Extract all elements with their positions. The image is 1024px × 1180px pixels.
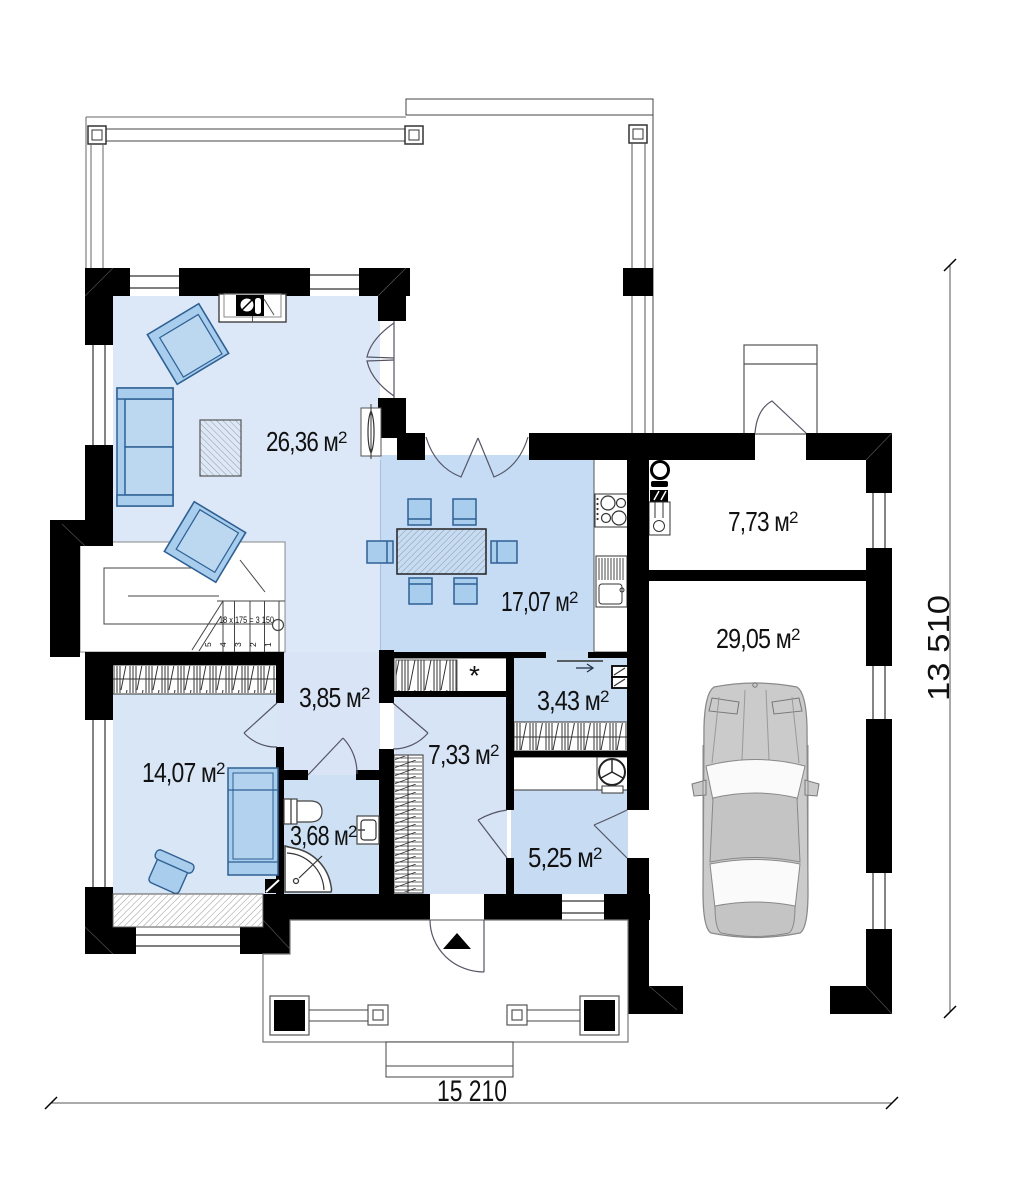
svg-text:7,33 м2: 7,33 м2 [428,739,499,770]
svg-text:3,43 м2: 3,43 м2 [537,685,609,716]
svg-text:3,68 м2: 3,68 м2 [290,820,357,851]
svg-text:29,05 м2: 29,05 м2 [716,623,800,654]
svg-text:7,73 м2: 7,73 м2 [728,506,798,537]
svg-text:26,36 м2: 26,36 м2 [266,426,347,457]
svg-text:14,07 м2: 14,07 м2 [142,757,225,788]
svg-text:4: 4 [218,642,228,647]
svg-text:15 210: 15 210 [437,1075,507,1108]
svg-text:2: 2 [248,642,258,647]
svg-text:3,85 м2: 3,85 м2 [299,682,370,713]
svg-text:1: 1 [263,642,273,647]
svg-text:*: * [469,660,480,691]
svg-text:5,25 м2: 5,25 м2 [528,842,602,873]
svg-text:18 x 175 = 3 150: 18 x 175 = 3 150 [219,615,274,625]
svg-text:13 510: 13 510 [921,595,956,701]
svg-text:3: 3 [233,642,243,647]
svg-text:17,07 м2: 17,07 м2 [501,586,578,617]
svg-text:5: 5 [203,642,213,647]
